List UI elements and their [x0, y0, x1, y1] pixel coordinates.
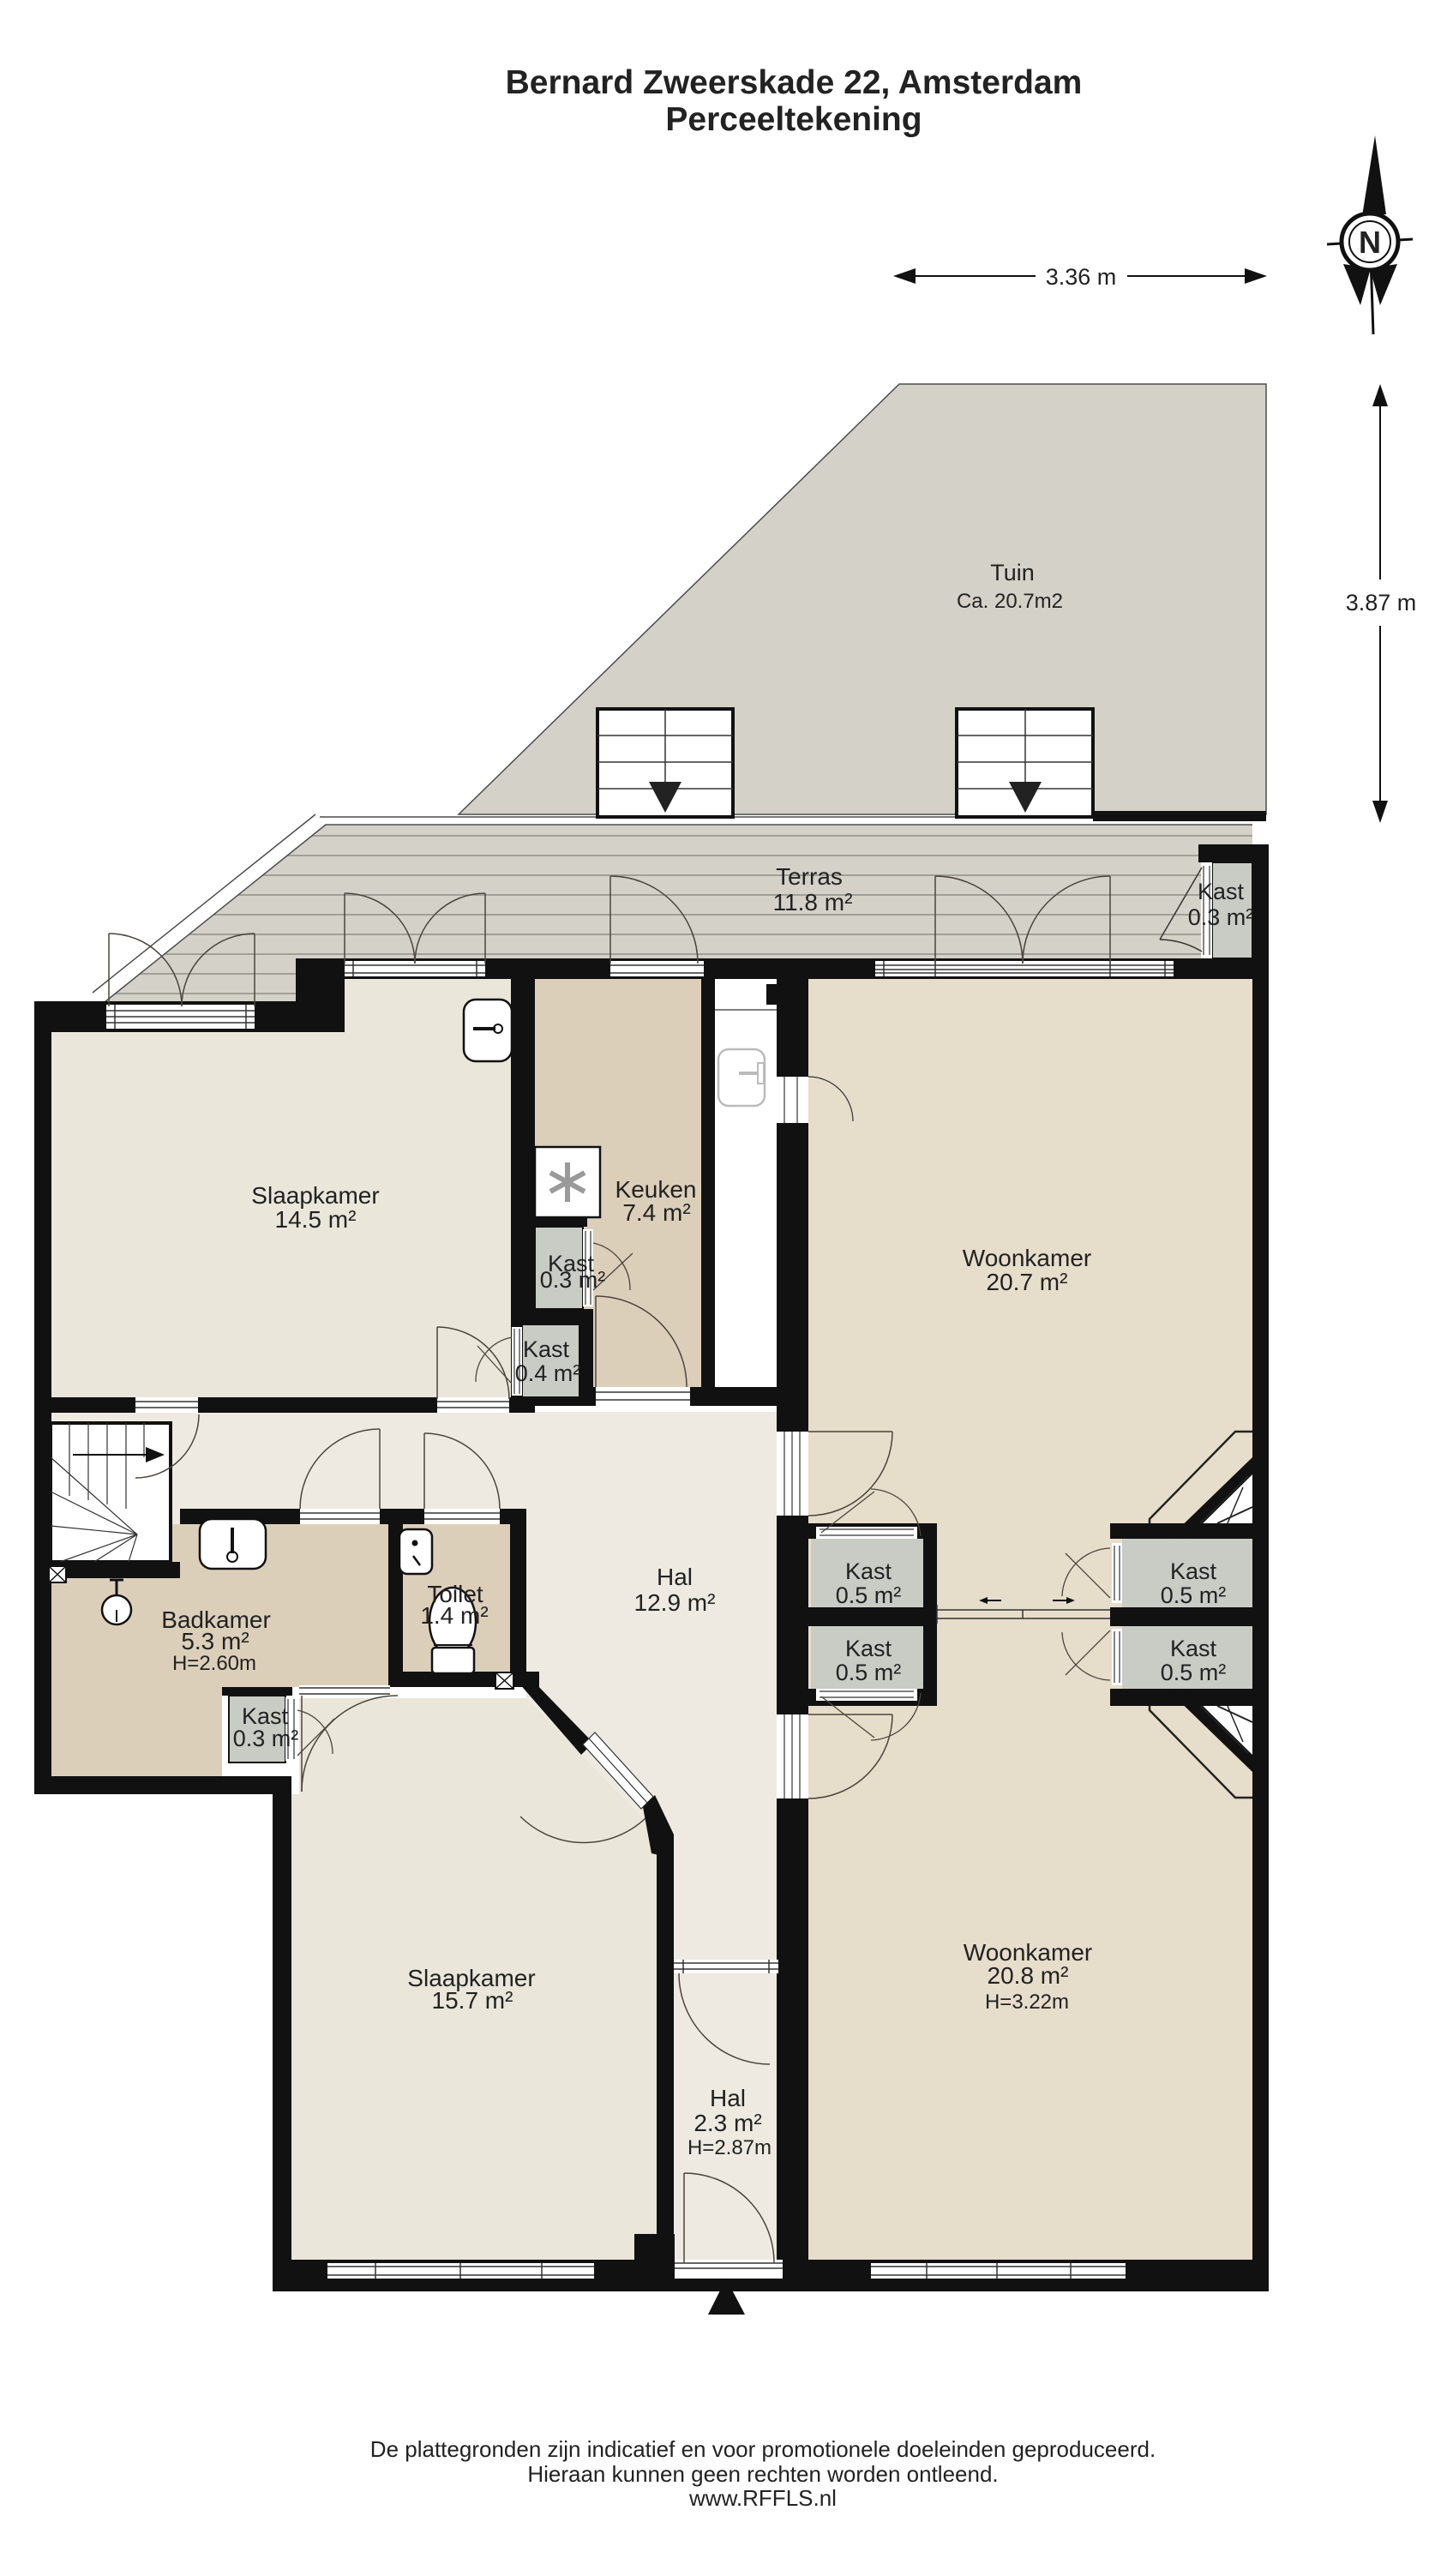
svg-text:0.3 m²: 0.3 m²: [1188, 904, 1254, 930]
svg-text:0.5 m²: 0.5 m²: [1161, 1582, 1227, 1608]
svg-text:H=2.87m: H=2.87m: [687, 2136, 772, 2159]
svg-text:Slaapkamer: Slaapkamer: [251, 1182, 379, 1209]
svg-text:Hal: Hal: [710, 2085, 746, 2111]
svg-text:De plattegronden zijn indicati: De plattegronden zijn indicatief en voor…: [370, 2436, 1156, 2462]
svg-text:Hal: Hal: [657, 1564, 693, 1590]
svg-text:Kast: Kast: [1170, 1558, 1217, 1584]
svg-text:Kast: Kast: [1198, 879, 1245, 904]
svg-text:Woonkamer: Woonkamer: [963, 1245, 1091, 1271]
svg-text:Ca. 20.7m2: Ca. 20.7m2: [957, 590, 1063, 613]
svg-text:www.RFFLS.nl: www.RFFLS.nl: [688, 2485, 837, 2511]
svg-text:Bernard Zweerskade 22, Amsterd: Bernard Zweerskade 22, Amsterdam: [506, 64, 1083, 101]
svg-text:0.3 m²: 0.3 m²: [233, 1726, 299, 1751]
svg-text:Terras: Terras: [776, 863, 843, 890]
svg-text:Kast: Kast: [845, 1636, 892, 1661]
svg-text:3.87 m: 3.87 m: [1346, 590, 1417, 615]
svg-text:Perceeltekening: Perceeltekening: [665, 101, 922, 138]
svg-text:20.7 m²: 20.7 m²: [987, 1269, 1068, 1295]
svg-text:Kast: Kast: [523, 1336, 570, 1362]
svg-text:14.5 m²: 14.5 m²: [275, 1206, 357, 1233]
svg-text:Kast: Kast: [1170, 1636, 1217, 1661]
svg-text:H=2.60m: H=2.60m: [172, 1652, 256, 1675]
svg-text:Tuin: Tuin: [990, 560, 1035, 585]
svg-text:Kast: Kast: [845, 1558, 892, 1584]
svg-text:N: N: [1359, 225, 1381, 260]
svg-text:7.4 m²: 7.4 m²: [622, 1199, 690, 1226]
svg-text:Hieraan kunnen geen rechten wo: Hieraan kunnen geen rechten worden ontle…: [527, 2461, 998, 2487]
svg-text:0.5 m²: 0.5 m²: [836, 1582, 902, 1608]
svg-text:1.4 m²: 1.4 m²: [420, 1602, 488, 1629]
svg-text:0.3 m²: 0.3 m²: [540, 1267, 606, 1293]
svg-text:15.7 m²: 15.7 m²: [432, 1987, 513, 2014]
svg-text:12.9 m²: 12.9 m²: [634, 1589, 716, 1616]
svg-text:5.3 m²: 5.3 m²: [181, 1628, 249, 1654]
svg-text:3.36 m: 3.36 m: [1046, 264, 1117, 290]
svg-text:11.8 m²: 11.8 m²: [773, 889, 853, 916]
svg-text:2.3 m²: 2.3 m²: [693, 2110, 761, 2136]
svg-text:0.5 m²: 0.5 m²: [1161, 1660, 1227, 1685]
svg-text:0.4 m²: 0.4 m²: [515, 1360, 581, 1386]
svg-text:0.5 m²: 0.5 m²: [836, 1660, 902, 1685]
svg-text:H=3.22m: H=3.22m: [985, 1991, 1069, 2014]
svg-text:20.8 m²: 20.8 m²: [988, 1962, 1069, 1989]
